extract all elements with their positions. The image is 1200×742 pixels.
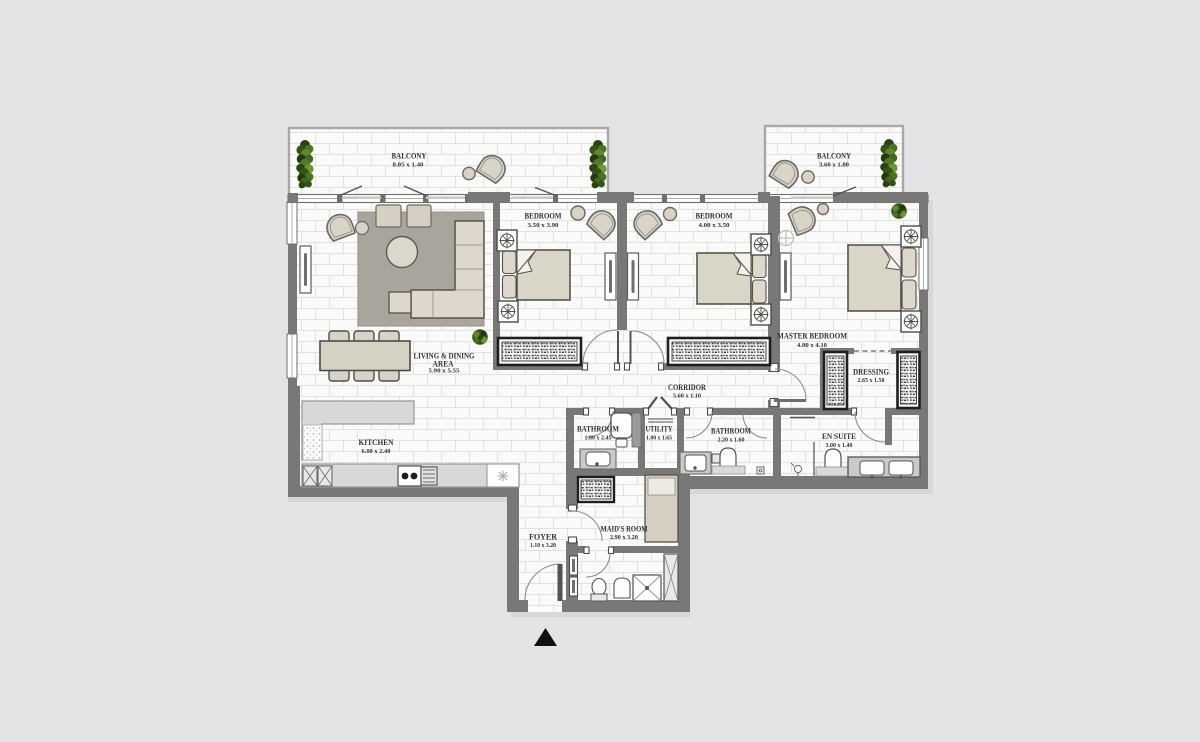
svg-text:BATHROOM: BATHROOM — [577, 425, 619, 434]
svg-text:4.00 x 4.10: 4.00 x 4.10 — [797, 343, 827, 349]
svg-text:4.00 x 3.50: 4.00 x 3.50 — [699, 223, 730, 229]
svg-text:1.80 x 2.45: 1.80 x 2.45 — [585, 436, 612, 442]
svg-text:DRESSING: DRESSING — [853, 368, 890, 377]
svg-text:MAID'S ROOM: MAID'S ROOM — [601, 525, 648, 534]
svg-text:FOYER: FOYER — [529, 533, 557, 542]
svg-text:8.05 x 1.40: 8.05 x 1.40 — [393, 163, 424, 169]
svg-text:KITCHEN: KITCHEN — [359, 438, 394, 447]
svg-text:BEDROOM: BEDROOM — [696, 212, 733, 221]
svg-text:BEDROOM: BEDROOM — [525, 212, 562, 221]
svg-text:BALCONY: BALCONY — [392, 152, 427, 161]
svg-text:5.60 x 1.10: 5.60 x 1.10 — [673, 394, 701, 400]
svg-text:AREA: AREA — [433, 360, 454, 369]
svg-text:EN SUITE: EN SUITE — [822, 432, 856, 441]
svg-text:2.20 x 1.60: 2.20 x 1.60 — [718, 438, 745, 444]
svg-text:UTILITY: UTILITY — [646, 425, 673, 434]
svg-text:3.00 x 1.40: 3.00 x 1.40 — [826, 443, 853, 449]
svg-text:BALCONY: BALCONY — [817, 152, 851, 161]
svg-text:2.65 x 1.50: 2.65 x 1.50 — [858, 378, 885, 384]
svg-text:3.60 x 1.80: 3.60 x 1.80 — [819, 163, 849, 169]
svg-text:BATHROOM: BATHROOM — [711, 427, 751, 436]
svg-text:1.10 x 3.20: 1.10 x 3.20 — [530, 543, 556, 549]
svg-text:1.00 x 1.65: 1.00 x 1.65 — [646, 436, 672, 442]
svg-text:3.50 x 3.90: 3.50 x 3.90 — [528, 223, 559, 229]
svg-text:5.90 x 5.55: 5.90 x 5.55 — [429, 369, 460, 375]
svg-text:CORRIDOR: CORRIDOR — [668, 383, 706, 392]
svg-text:MASTER BEDROOM: MASTER BEDROOM — [777, 332, 847, 341]
svg-text:2.90 x 3.20: 2.90 x 3.20 — [610, 535, 638, 541]
svg-text:6.00 x 2.40: 6.00 x 2.40 — [362, 449, 391, 455]
